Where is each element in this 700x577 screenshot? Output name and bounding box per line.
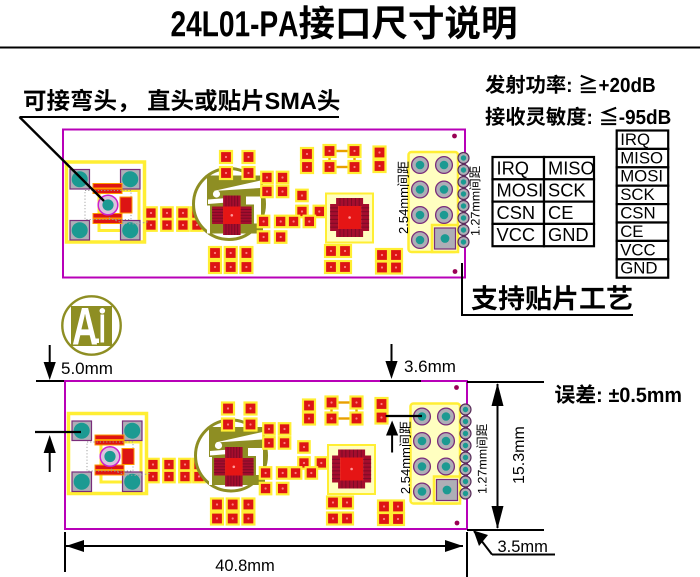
- svg-text:MISO: MISO: [548, 157, 595, 178]
- svg-text:3.5mm: 3.5mm: [498, 538, 548, 556]
- svg-text:MISO: MISO: [620, 148, 663, 167]
- svg-text:VCC: VCC: [497, 224, 536, 245]
- svg-text:CE: CE: [620, 222, 643, 241]
- svg-text:CSN: CSN: [497, 202, 536, 223]
- svg-text:GND: GND: [548, 224, 589, 245]
- svg-text:VCC: VCC: [620, 240, 655, 259]
- svg-text:SCK: SCK: [548, 180, 586, 201]
- svg-text:5.0mm: 5.0mm: [61, 359, 113, 378]
- svg-text:CSN: CSN: [620, 204, 655, 223]
- svg-text:GND: GND: [620, 259, 657, 278]
- svg-text:IRQ: IRQ: [620, 130, 650, 149]
- svg-text:3.6mm: 3.6mm: [404, 357, 456, 376]
- svg-text:40.8mm: 40.8mm: [215, 557, 275, 575]
- svg-text:15.3mm: 15.3mm: [511, 426, 528, 484]
- svg-text:MOSI: MOSI: [497, 180, 544, 201]
- svg-text:IRQ: IRQ: [497, 157, 530, 178]
- svg-text:SCK: SCK: [620, 185, 655, 204]
- svg-text:CE: CE: [548, 202, 573, 223]
- svg-text:MOSI: MOSI: [620, 167, 663, 186]
